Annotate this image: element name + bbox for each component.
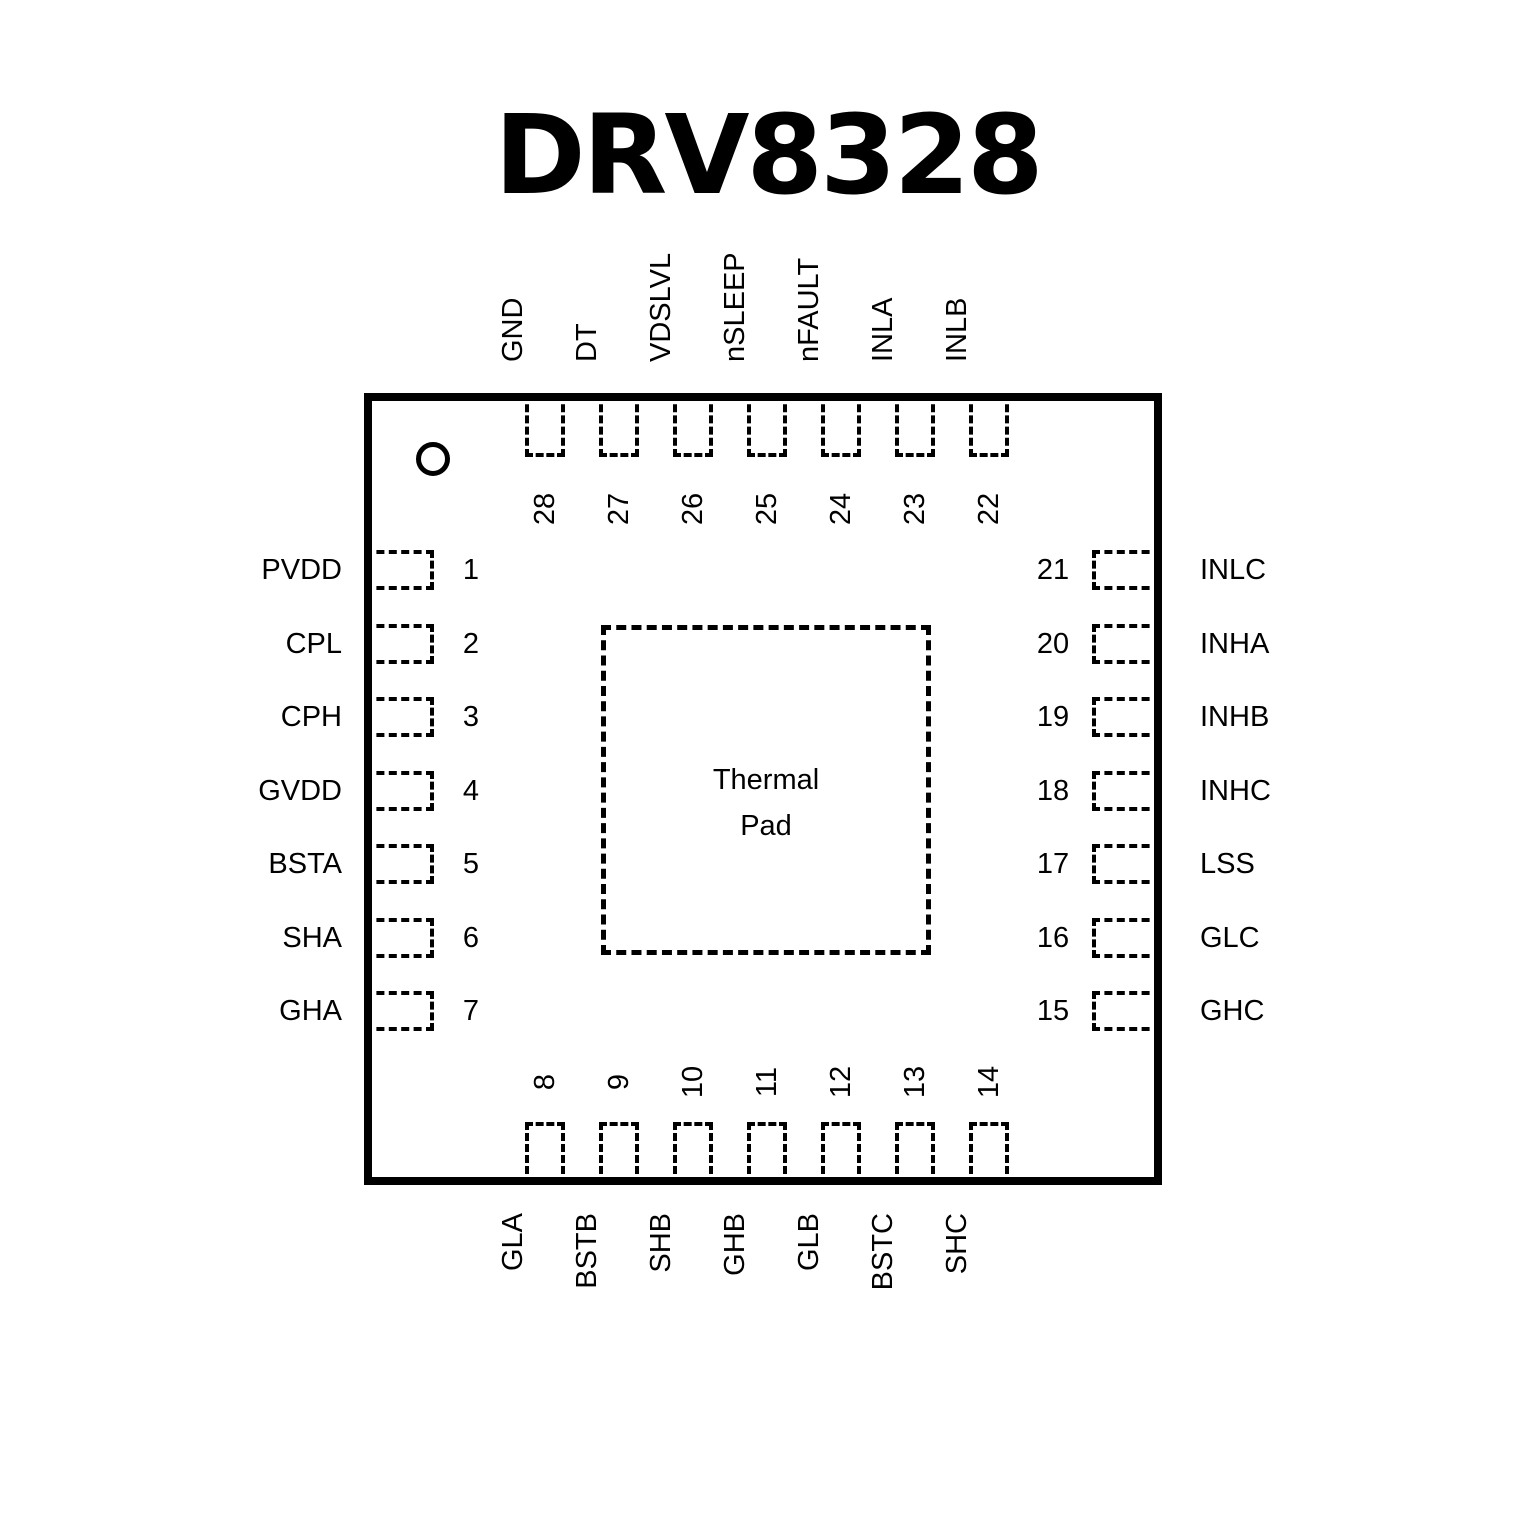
pin-24-pad	[821, 393, 861, 457]
pin-7-label: GHA	[132, 995, 342, 1027]
pin-27-label: DT	[571, 192, 603, 362]
pin-20-pad	[1092, 624, 1162, 664]
pin-12-number: 12	[825, 1050, 857, 1114]
pin-7-pad	[364, 991, 434, 1031]
pin-16-pad	[1092, 918, 1162, 958]
pin-9-number: 9	[603, 1050, 635, 1114]
pin-17-pad	[1092, 844, 1162, 884]
pin-10-number: 10	[677, 1050, 709, 1114]
pin-12-label: GLB	[793, 1213, 825, 1383]
pin-5-number: 5	[446, 848, 496, 880]
thermal-pad-label-line2: Pad	[740, 803, 792, 849]
pin-5-pad	[364, 844, 434, 884]
pin-25-pad	[747, 393, 787, 457]
pin-1-pad	[364, 550, 434, 590]
pin-28-number: 28	[529, 477, 561, 541]
pin-3-label: CPH	[132, 701, 342, 733]
thermal-pad: Thermal Pad	[601, 625, 931, 955]
pin-23-number: 23	[899, 477, 931, 541]
pin-2-number: 2	[446, 628, 496, 660]
pin-28-pad	[525, 393, 565, 457]
pin-14-label: SHC	[941, 1213, 973, 1383]
pin1-indicator-dot	[416, 442, 450, 476]
pin-4-number: 4	[446, 775, 496, 807]
pin-26-pad	[673, 393, 713, 457]
pin-10-label: SHB	[645, 1213, 677, 1383]
pinout-diagram: DRV8328 Thermal Pad 1 PVDD 2 CPL 3 CPH 4…	[0, 0, 1535, 1535]
pin-24-label: nFAULT	[793, 192, 825, 362]
pin-22-pad	[969, 393, 1009, 457]
pin-27-number: 27	[603, 477, 635, 541]
pin-6-number: 6	[446, 922, 496, 954]
pin-10-pad	[673, 1122, 713, 1185]
pin-22-label: INLB	[941, 192, 973, 362]
pin-8-pad	[525, 1122, 565, 1185]
pin-19-number: 19	[1028, 701, 1078, 733]
pin-18-number: 18	[1028, 775, 1078, 807]
pin-14-pad	[969, 1122, 1009, 1185]
pin-9-pad	[599, 1122, 639, 1185]
pin-26-number: 26	[677, 477, 709, 541]
pin-24-number: 24	[825, 477, 857, 541]
pin-20-number: 20	[1028, 628, 1078, 660]
pin-14-number: 14	[973, 1050, 1005, 1114]
pin-27-pad	[599, 393, 639, 457]
pin-3-pad	[364, 697, 434, 737]
pin-16-label: GLC	[1200, 922, 1410, 954]
pin-23-label: INLA	[867, 192, 899, 362]
pin-13-label: BSTC	[867, 1213, 899, 1383]
page-title: DRV8328	[0, 100, 1535, 210]
pin-2-label: CPL	[132, 628, 342, 660]
pin-15-label: GHC	[1200, 995, 1410, 1027]
pin-11-pad	[747, 1122, 787, 1185]
pin-7-number: 7	[446, 995, 496, 1027]
pin-13-pad	[895, 1122, 935, 1185]
pin-17-label: LSS	[1200, 848, 1410, 880]
pin-18-pad	[1092, 771, 1162, 811]
pin-19-pad	[1092, 697, 1162, 737]
pin-6-label: SHA	[132, 922, 342, 954]
thermal-pad-label-line1: Thermal	[713, 757, 819, 803]
pin-4-pad	[364, 771, 434, 811]
pin-21-label: INLC	[1200, 554, 1410, 586]
pin-13-number: 13	[899, 1050, 931, 1114]
pin-6-pad	[364, 918, 434, 958]
pin-11-label: GHB	[719, 1213, 751, 1383]
pin-5-label: BSTA	[132, 848, 342, 880]
pin-3-number: 3	[446, 701, 496, 733]
pin-21-pad	[1092, 550, 1162, 590]
pin-17-number: 17	[1028, 848, 1078, 880]
pin-11-number: 11	[751, 1050, 783, 1114]
pin-9-label: BSTB	[571, 1213, 603, 1383]
pin-20-label: INHA	[1200, 628, 1410, 660]
pin-4-label: GVDD	[132, 775, 342, 807]
pin-16-number: 16	[1028, 922, 1078, 954]
pin-25-number: 25	[751, 477, 783, 541]
pin-26-label: VDSLVL	[645, 192, 677, 362]
pin-22-number: 22	[973, 477, 1005, 541]
pin-18-label: INHC	[1200, 775, 1410, 807]
pin-8-number: 8	[529, 1050, 561, 1114]
pin-23-pad	[895, 393, 935, 457]
pin-19-label: INHB	[1200, 701, 1410, 733]
pin-8-label: GLA	[497, 1213, 529, 1383]
pin-12-pad	[821, 1122, 861, 1185]
pin-15-number: 15	[1028, 995, 1078, 1027]
pin-1-number: 1	[446, 554, 496, 586]
pin-1-label: PVDD	[132, 554, 342, 586]
pin-21-number: 21	[1028, 554, 1078, 586]
pin-28-label: GND	[497, 192, 529, 362]
pin-2-pad	[364, 624, 434, 664]
pin-25-label: nSLEEP	[719, 192, 751, 362]
pin-15-pad	[1092, 991, 1162, 1031]
